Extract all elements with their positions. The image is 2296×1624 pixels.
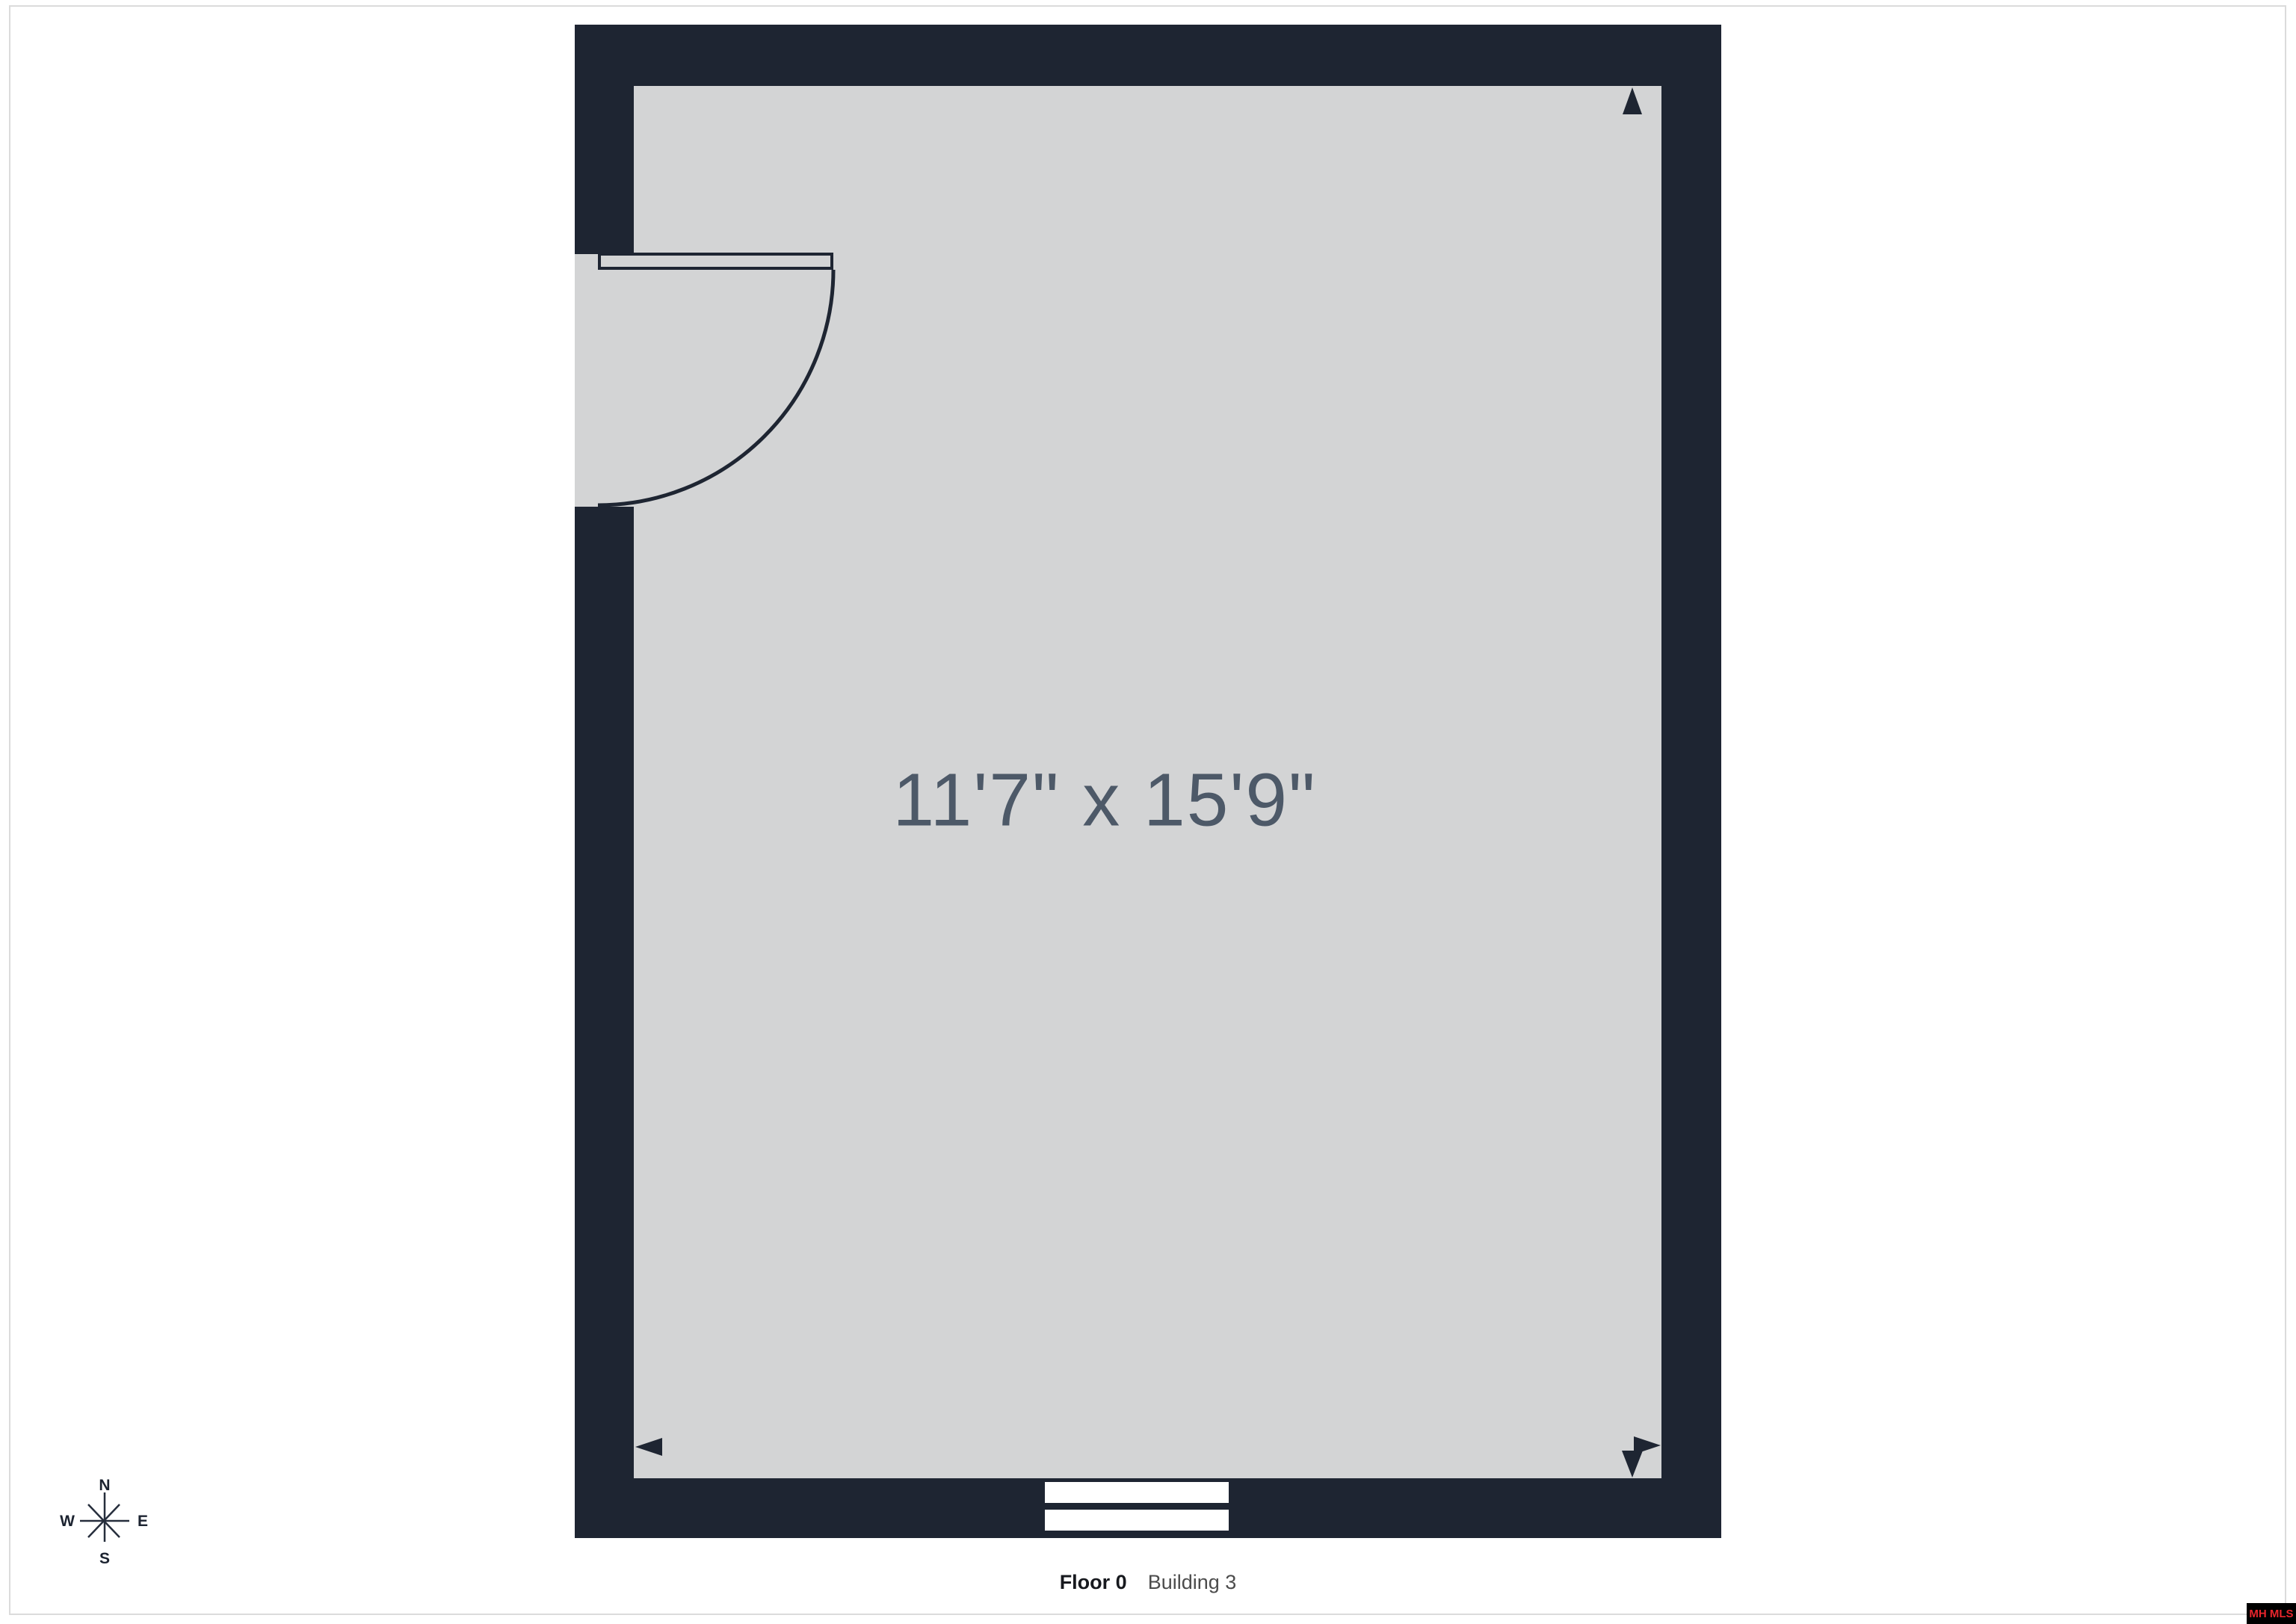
arrow-down-icon <box>1622 1451 1643 1478</box>
arrow-left-icon <box>635 1438 662 1456</box>
window-symbol <box>1041 1479 1232 1536</box>
mh-mls-logo: MH MLS <box>2247 1603 2296 1624</box>
compass-south-label: S <box>99 1550 110 1567</box>
compass-west-label: W <box>60 1513 75 1530</box>
compass-east-label: E <box>138 1513 148 1530</box>
page-background: 11'7" x 15'9" N E S W Floor 0 Building 3… <box>0 0 2296 1624</box>
room-dimensions-label: 11'7" x 15'9" <box>892 758 1316 844</box>
door-leaf <box>598 253 833 270</box>
arrow-up-icon <box>1623 87 1642 114</box>
window-pane <box>1043 1507 1231 1533</box>
floor-caption: Floor 0 Building 3 <box>0 1569 2296 1595</box>
compass-north-label: N <box>99 1477 110 1494</box>
window-pane <box>1043 1480 1231 1505</box>
compass-rose-icon: N E S W <box>52 1469 157 1573</box>
door-opening <box>575 254 634 507</box>
building-label: Building 3 <box>1148 1569 1237 1595</box>
floor-label: Floor 0 <box>1060 1569 1127 1595</box>
